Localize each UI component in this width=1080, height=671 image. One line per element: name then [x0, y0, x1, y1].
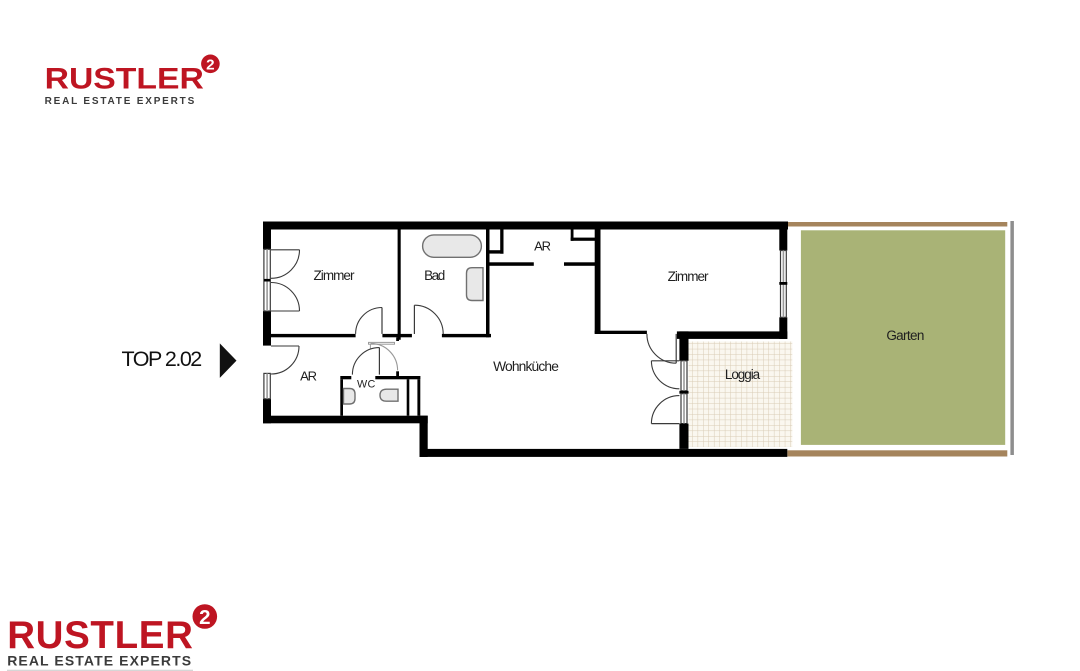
- svg-text:Loggia: Loggia: [725, 367, 761, 382]
- svg-text:Zimmer: Zimmer: [313, 268, 354, 283]
- svg-text:AR: AR: [300, 369, 316, 384]
- svg-text:2: 2: [199, 606, 210, 629]
- svg-text:Bad: Bad: [424, 268, 445, 283]
- svg-text:REAL ESTATE EXPERTS: REAL ESTATE EXPERTS: [45, 96, 196, 107]
- svg-text:REAL ESTATE EXPERTS: REAL ESTATE EXPERTS: [7, 653, 192, 669]
- svg-text:RUSTLER: RUSTLER: [7, 614, 193, 657]
- svg-text:TOP 2.02: TOP 2.02: [122, 347, 202, 371]
- svg-text:WC: WC: [357, 378, 376, 390]
- svg-text:RUSTLER: RUSTLER: [45, 61, 204, 95]
- svg-text:Wohnküche: Wohnküche: [493, 359, 559, 374]
- svg-text:AR: AR: [534, 239, 550, 254]
- svg-text:Zimmer: Zimmer: [668, 269, 709, 284]
- svg-text:2: 2: [206, 57, 214, 74]
- svg-text:Garten: Garten: [886, 328, 924, 343]
